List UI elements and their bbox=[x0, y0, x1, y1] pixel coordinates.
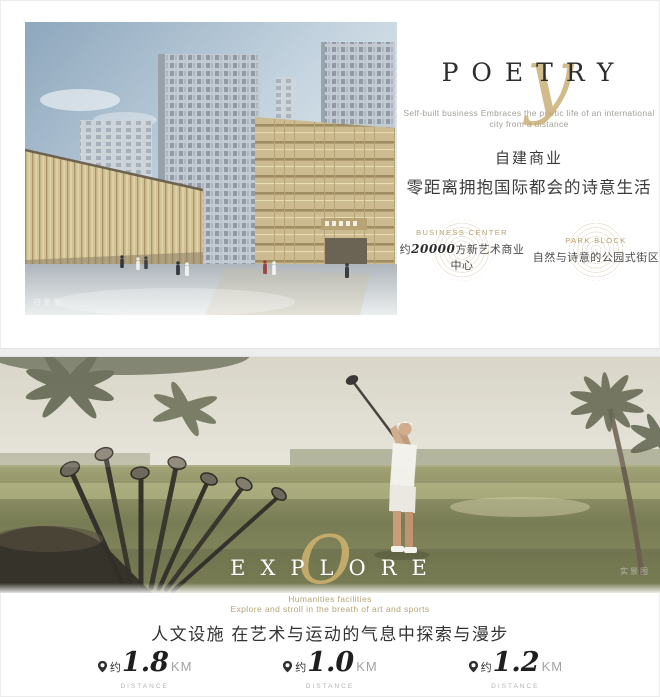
photo-watermark: 实景图 bbox=[620, 566, 650, 577]
poetry-title: POETRY bbox=[398, 58, 660, 87]
badge-label: BUSINESS CENTER bbox=[416, 228, 508, 237]
golf-photo: 实景图 bbox=[0, 357, 660, 593]
distance-list: 约 1.8 KM DISTANCE 艺术+生活 上海国际舞蹈中心 约 1.0 K… bbox=[0, 648, 660, 697]
badge-text: 自然与诗意的公园式街区 bbox=[533, 249, 660, 265]
golf-course-illustration bbox=[0, 357, 660, 593]
location-pin-icon bbox=[282, 660, 293, 673]
distance-value: 1.2 bbox=[493, 648, 540, 678]
poetry-heading-cn-1: 自建商业 bbox=[398, 147, 660, 168]
distance-item-children-museum: 约 1.2 KM DISTANCE 探索+生活 上海儿童博物馆 bbox=[423, 648, 608, 697]
distance-sublabel: DISTANCE bbox=[423, 683, 608, 690]
brochure-page: 效果图 y POETRY Self-built business Embrace… bbox=[0, 0, 660, 697]
distance-sublabel: DISTANCE bbox=[52, 683, 237, 690]
explore-subtitle: Humanities facilities Explore and stroll… bbox=[0, 594, 660, 614]
poetry-heading-cn-2: 零距离拥抱国际都会的诗意生活 bbox=[398, 174, 660, 198]
distance-item-golf-club: 约 1.0 KM DISTANCE 运动+生活 虹桥高尔夫俱乐部 bbox=[237, 648, 422, 697]
distance-value: 1.8 bbox=[122, 648, 169, 678]
distance-sublabel: DISTANCE bbox=[237, 683, 422, 690]
location-pin-icon bbox=[97, 660, 108, 673]
badge-business-center: BUSINESS CENTER 约20000方新艺术商业中心 bbox=[398, 218, 526, 282]
render-watermark: 效果图 bbox=[33, 297, 63, 308]
badge-label: PARK BLOCK bbox=[565, 236, 626, 245]
building-render-image: 效果图 bbox=[25, 22, 397, 315]
badge-park-block: PARK BLOCK 自然与诗意的公园式街区 bbox=[532, 218, 660, 282]
poetry-text-column: y POETRY Self-built business Embraces th… bbox=[398, 0, 660, 348]
badge-text: 约20000方新艺术商业中心 bbox=[398, 241, 526, 273]
location-pin-icon bbox=[468, 660, 479, 673]
section-divider bbox=[0, 348, 660, 357]
explore-heading-cn: 人文设施 在艺术与运动的气息中探索与漫步 bbox=[0, 620, 660, 645]
building-render-illustration bbox=[25, 22, 397, 315]
distance-value: 1.0 bbox=[307, 648, 354, 678]
distance-item-dance-center: 约 1.8 KM DISTANCE 艺术+生活 上海国际舞蹈中心 bbox=[52, 648, 237, 697]
feature-badges: BUSINESS CENTER 约20000方新艺术商业中心 PARK BLOC… bbox=[398, 218, 660, 282]
